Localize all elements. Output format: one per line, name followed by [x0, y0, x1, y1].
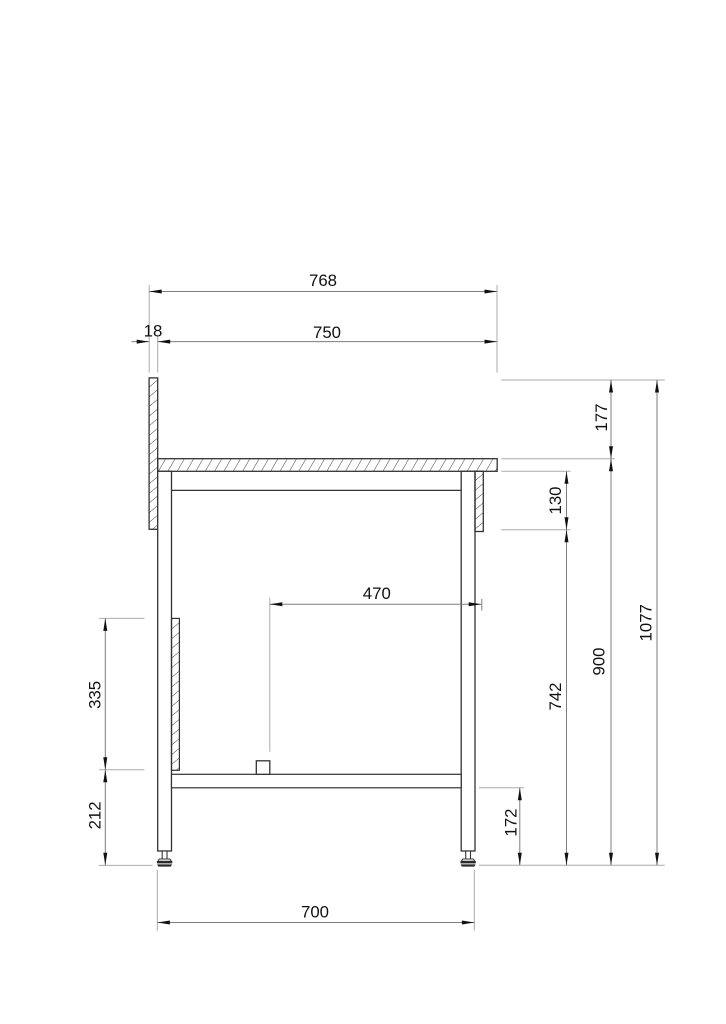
svg-text:130: 130: [546, 487, 565, 515]
svg-text:900: 900: [590, 648, 609, 676]
svg-text:470: 470: [363, 584, 391, 603]
svg-text:742: 742: [546, 683, 565, 711]
svg-text:335: 335: [85, 681, 104, 709]
svg-text:750: 750: [313, 323, 341, 342]
svg-text:177: 177: [592, 404, 611, 432]
svg-text:1077: 1077: [637, 604, 656, 641]
svg-text:172: 172: [502, 809, 521, 837]
svg-text:212: 212: [85, 801, 104, 829]
svg-text:700: 700: [301, 903, 329, 922]
svg-text:18: 18: [144, 322, 163, 341]
svg-text:768: 768: [309, 271, 337, 290]
